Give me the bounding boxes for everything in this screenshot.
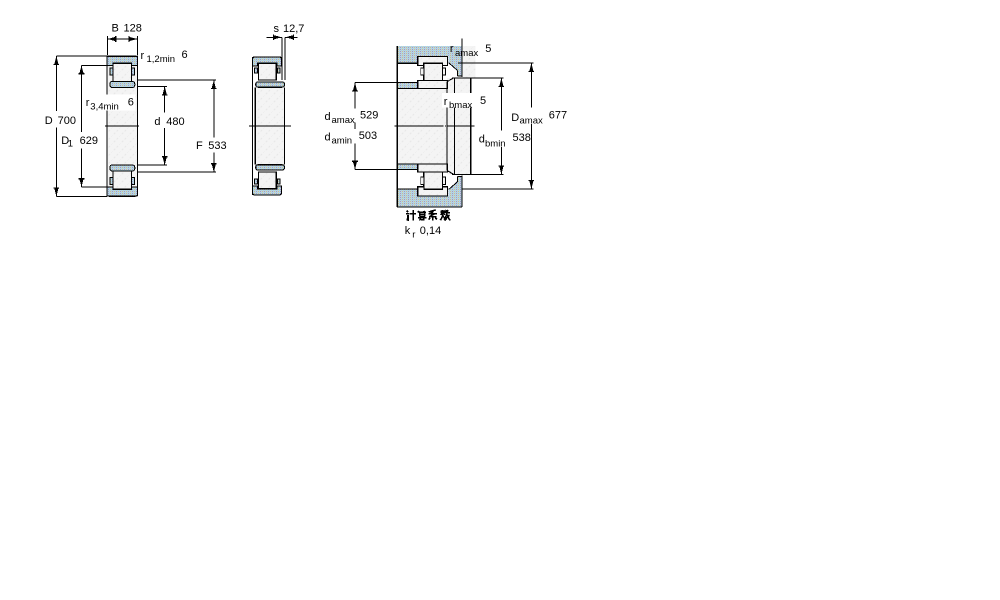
svg-text:0,14: 0,14	[420, 225, 441, 237]
svg-text:r: r	[86, 97, 90, 109]
svg-text:r: r	[141, 50, 145, 62]
svg-text:677: 677	[549, 110, 567, 122]
svg-text:5: 5	[480, 95, 486, 107]
svg-text:r: r	[444, 96, 448, 108]
svg-text:529: 529	[360, 110, 378, 122]
svg-text:480: 480	[166, 116, 184, 128]
svg-text:6: 6	[182, 49, 188, 61]
svg-text:amax: amax	[332, 115, 355, 126]
svg-text:538: 538	[513, 132, 531, 144]
svg-text:D: D	[511, 112, 519, 124]
svg-text:bmax: bmax	[449, 100, 472, 111]
svg-text:k: k	[405, 225, 411, 237]
svg-text:503: 503	[359, 130, 377, 142]
svg-text:amin: amin	[332, 135, 353, 146]
svg-text:r: r	[450, 43, 454, 55]
svg-text:B: B	[112, 23, 119, 35]
svg-text:1,2min: 1,2min	[147, 54, 176, 65]
svg-text:12,7: 12,7	[283, 23, 304, 35]
svg-text:d: d	[154, 116, 160, 128]
svg-text:d: d	[479, 133, 485, 145]
svg-text:700: 700	[58, 115, 76, 127]
svg-text:amax: amax	[455, 48, 478, 59]
svg-text:d: d	[325, 131, 331, 143]
svg-text:d: d	[325, 111, 331, 123]
svg-text:D: D	[45, 115, 53, 127]
svg-text:6: 6	[128, 96, 134, 108]
svg-text:r: r	[412, 230, 415, 241]
svg-text:F: F	[196, 140, 203, 152]
svg-text:s: s	[274, 23, 280, 35]
svg-text:128: 128	[124, 23, 142, 35]
svg-text:629: 629	[80, 135, 98, 147]
svg-text:bmin: bmin	[485, 138, 506, 149]
svg-text:5: 5	[485, 43, 491, 55]
svg-text:3,4min: 3,4min	[90, 102, 119, 113]
svg-text:533: 533	[208, 140, 226, 152]
svg-text:1: 1	[68, 138, 73, 149]
svg-text:amax: amax	[520, 116, 543, 127]
